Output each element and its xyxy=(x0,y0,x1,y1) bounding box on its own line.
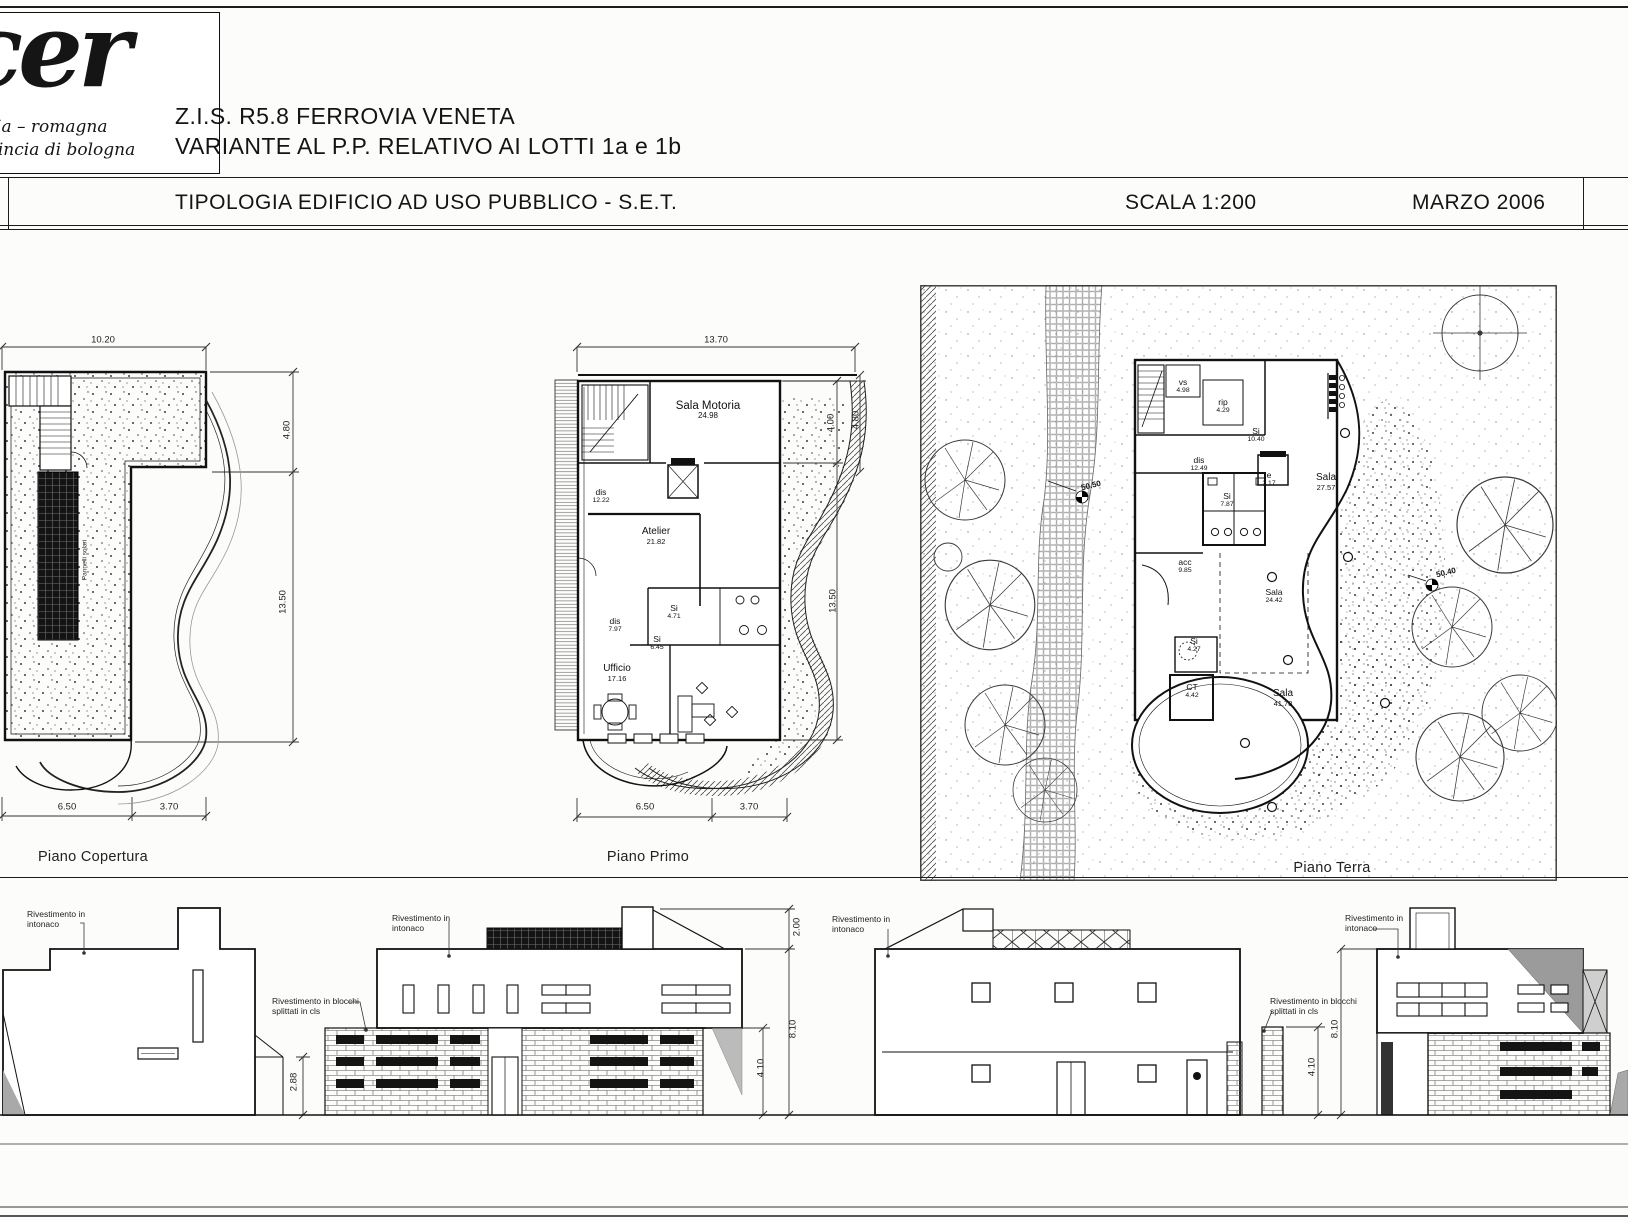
copertura-dim-bottom-left: 6.50 xyxy=(58,802,77,813)
note-intonaco-3: Rivestimento in intonaco xyxy=(832,914,918,935)
elevation-34-tower xyxy=(1262,1011,1283,1115)
room-ufficio: Ufficio17.16 xyxy=(603,664,631,683)
dim-288: 2.88 xyxy=(289,1073,300,1092)
titlebar-left-edge xyxy=(8,177,9,229)
room-si-645: Si6.45 xyxy=(650,635,663,652)
drawing-sheet: cer emilia – romagna provincia di bologn… xyxy=(0,0,1628,1221)
terra-building-outline xyxy=(1135,360,1337,720)
date-label: MARZO 2006 xyxy=(1412,191,1545,215)
elevations-drawing xyxy=(0,885,1628,1221)
titlebar-bottom-line xyxy=(0,225,1628,226)
room-si-427: Si4.27 xyxy=(1187,637,1200,654)
primo-dim-right-outer: 4.80 xyxy=(851,411,862,430)
note-intonaco-4: Rivestimento in intonaco xyxy=(1345,913,1431,934)
dim-810-a: 8.10 xyxy=(788,1020,799,1039)
piano-copertura-drawing xyxy=(0,300,310,885)
dim-410-b: 4.10 xyxy=(1307,1058,1318,1077)
room-sala-2757: Sala27.57 xyxy=(1316,473,1336,492)
note-blocchi-2: Rivestimento in blocchi splittati in cls xyxy=(1270,996,1366,1017)
logo-province: provincia di bologna xyxy=(0,140,135,160)
solar-panels xyxy=(38,472,78,640)
primo-dim-bottom-left: 6.50 xyxy=(636,802,655,813)
sheet-top-border xyxy=(0,6,1628,8)
primo-left-wall xyxy=(555,380,578,730)
room-sala-motoria: Sala Motoria24.98 xyxy=(676,400,741,421)
caption-piano-primo: Piano Primo xyxy=(607,849,689,865)
elevation-2 xyxy=(325,907,742,1115)
note-intonaco-2: Rivestimento in intonaco xyxy=(392,913,478,934)
copertura-dim-right-upper: 4.80 xyxy=(282,421,293,440)
solar-panels-label: Pannelli solari xyxy=(82,540,89,580)
copertura-dim-right-lower: 13.50 xyxy=(278,590,289,614)
plans-elevations-separator xyxy=(0,877,1628,878)
primo-dim-right-inner: 4.00 xyxy=(826,414,837,433)
titlebar-right-edge xyxy=(1583,177,1584,229)
room-e: e2.17 xyxy=(1262,471,1275,488)
copertura-dim-bottom-right: 3.70 xyxy=(160,802,179,813)
primo-building-outline xyxy=(578,381,780,740)
dim-410-a: 4.10 xyxy=(756,1059,767,1078)
primo-bottom-curve xyxy=(583,740,727,786)
room-si-787: Si7.87 xyxy=(1220,492,1233,509)
room-dis-12: dis12.22 xyxy=(592,488,609,505)
piano-primo-drawing xyxy=(530,300,875,885)
primo-dim-right-lower: 13.50 xyxy=(828,589,839,613)
scale-label: SCALA 1:200 xyxy=(1125,191,1257,215)
primo-dim-bottom-right: 3.70 xyxy=(740,802,759,813)
room-si-1040: Si10.40 xyxy=(1247,427,1264,444)
elevation-1 xyxy=(3,908,283,1115)
caption-piano-copertura: Piano Copertura xyxy=(38,849,148,865)
sheet-subtitle: TIPOLOGIA EDIFICIO AD USO PUBBLICO - S.E… xyxy=(175,191,677,215)
primo-dim-top: 13.70 xyxy=(704,335,728,346)
copertura-roof-outline xyxy=(5,372,206,740)
note-blocchi-1: Rivestimento in blocchi splittati in cls xyxy=(272,996,368,1017)
logo-region: emilia – romagna xyxy=(0,117,108,137)
terra-boundary-hatch xyxy=(920,285,936,881)
room-si-471: Si4.71 xyxy=(667,604,680,621)
dim-810-b: 8.10 xyxy=(1330,1020,1341,1039)
room-ct: CT4.42 xyxy=(1185,683,1198,700)
room-rip: rip4.29 xyxy=(1216,398,1229,415)
title-line2: VARIANTE AL P.P. RELATIVO AI LOTTI 1a e … xyxy=(175,133,681,160)
elevation-3 xyxy=(875,909,1242,1115)
room-dis-1249: dis12.49 xyxy=(1190,456,1207,473)
room-sala-4178: Sala41.78 xyxy=(1273,689,1293,708)
primo-elevator xyxy=(668,458,698,498)
copertura-dim-top: 10.20 xyxy=(91,335,115,346)
titlebar-bottom-line2 xyxy=(0,229,1628,230)
piano-terra-drawing xyxy=(920,285,1557,881)
dim-200: 2.00 xyxy=(792,918,803,937)
logo-brand: cer xyxy=(0,0,127,111)
room-dis-7: dis7.97 xyxy=(608,617,621,634)
room-atelier: Atelier21.82 xyxy=(642,527,670,546)
caption-piano-terra: Piano Terra xyxy=(1293,860,1370,876)
titlebar-top-line xyxy=(0,177,1628,178)
room-sala-2442: Sala24.42 xyxy=(1265,588,1282,605)
note-intonaco-1: Rivestimento in intonaco xyxy=(27,909,113,930)
room-acc: acc9.85 xyxy=(1178,558,1191,575)
elevation-4 xyxy=(1372,908,1628,1115)
title-line1: Z.I.S. R5.8 FERROVIA VENETA xyxy=(175,103,515,130)
room-vs: vs4.98 xyxy=(1176,378,1189,395)
